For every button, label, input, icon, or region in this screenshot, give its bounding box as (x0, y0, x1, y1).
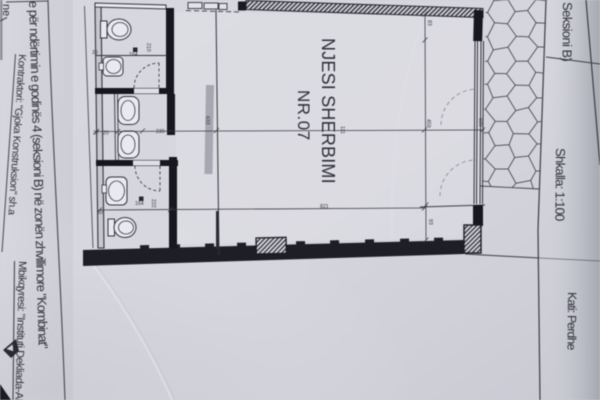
svg-text:83: 83 (426, 20, 432, 26)
svg-text:459: 459 (425, 119, 431, 128)
svg-text:164: 164 (129, 52, 138, 58)
svg-text:93: 93 (427, 219, 433, 225)
svg-text:210: 210 (145, 43, 151, 52)
svg-text:821: 821 (320, 204, 329, 210)
svg-text:111: 111 (339, 126, 345, 134)
svg-text:NJESI SHERBIMI: NJESI SHERBIMI (318, 38, 338, 184)
svg-text:NR.07: NR.07 (294, 90, 313, 141)
svg-text:ne: ne (0, 4, 12, 16)
svg-text:Seksioni B): Seksioni B) (559, 2, 575, 62)
svg-text:699: 699 (477, 118, 483, 127)
svg-text:27: 27 (93, 131, 99, 137)
svg-text:20: 20 (103, 131, 109, 137)
svg-text:Shkalla: 1:100: Shkalla: 1:100 (552, 148, 568, 221)
svg-text:633: 633 (204, 116, 210, 125)
svg-text:239: 239 (156, 129, 165, 135)
svg-text:30: 30 (97, 210, 103, 216)
svg-text:Kati: Perdhe: Kati: Perdhe (564, 292, 579, 351)
svg-text:222: 222 (150, 199, 156, 208)
svg-text:30: 30 (92, 50, 98, 56)
svg-text:164: 164 (135, 201, 144, 207)
